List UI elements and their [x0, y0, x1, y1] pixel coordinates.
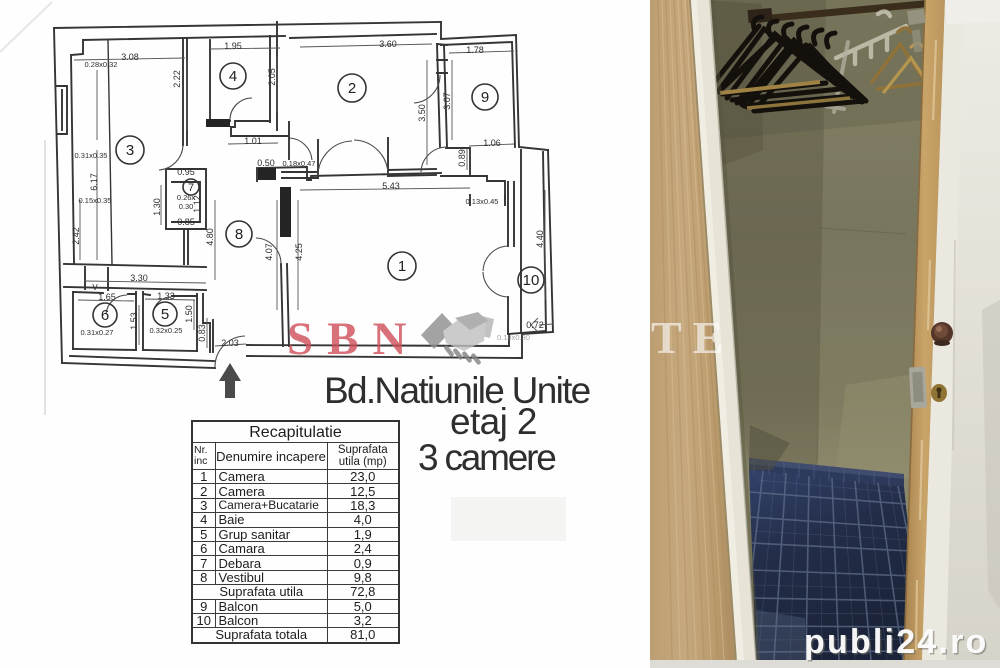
- svg-text:1.65: 1.65: [98, 292, 116, 302]
- svg-text:TE: TE: [651, 312, 734, 363]
- svg-text:2.42: 2.42: [71, 227, 81, 245]
- svg-text:0.18x0.47: 0.18x0.47: [283, 159, 316, 168]
- svg-text:1: 1: [398, 258, 406, 275]
- svg-text:9: 9: [481, 89, 489, 106]
- svg-text:0.95: 0.95: [177, 167, 195, 177]
- svg-text:0.13x0.45: 0.13x0.45: [466, 197, 499, 206]
- svg-text:1.78: 1.78: [466, 45, 484, 55]
- svg-text:1.01: 1.01: [244, 136, 262, 146]
- svg-text:3.60: 3.60: [379, 39, 397, 49]
- svg-text:8: 8: [235, 226, 243, 243]
- svg-text:3.30: 3.30: [130, 273, 148, 283]
- svg-text:0.31x0.35: 0.31x0.35: [75, 151, 108, 160]
- svg-text:0.18x0.30: 0.18x0.30: [497, 333, 530, 342]
- svg-text:3.50: 3.50: [417, 104, 427, 122]
- svg-text:2.05: 2.05: [267, 68, 277, 86]
- svg-text:6: 6: [101, 307, 109, 324]
- svg-text:1.12: 1.12: [192, 195, 202, 213]
- svg-text:0.28x0.32: 0.28x0.32: [85, 60, 118, 69]
- svg-text:0.50: 0.50: [257, 158, 275, 168]
- svg-text:0.83: 0.83: [197, 324, 207, 342]
- svg-text:4.80: 4.80: [205, 228, 215, 246]
- svg-text:1.95: 1.95: [224, 41, 242, 51]
- svg-text:3.07: 3.07: [442, 92, 452, 110]
- svg-text:10: 10: [523, 272, 540, 289]
- svg-text:2.22: 2.22: [172, 70, 182, 88]
- svg-text:1.33: 1.33: [157, 291, 175, 301]
- svg-text:4.25: 4.25: [294, 243, 304, 261]
- svg-text:2.03: 2.03: [221, 338, 239, 348]
- svg-text:5: 5: [161, 306, 169, 323]
- svg-text:0.85: 0.85: [177, 217, 195, 227]
- svg-text:0.89: 0.89: [457, 149, 467, 167]
- svg-text:4: 4: [229, 68, 237, 85]
- svg-text:1.53: 1.53: [129, 312, 139, 330]
- svg-text:0.31x0.27: 0.31x0.27: [81, 328, 114, 337]
- svg-text:4.07: 4.07: [264, 243, 274, 261]
- svg-text:0.32x0.25: 0.32x0.25: [150, 326, 183, 335]
- svg-text:0.15x0.35: 0.15x0.35: [79, 196, 112, 205]
- svg-text:3.08: 3.08: [121, 52, 139, 62]
- svg-text:1.50: 1.50: [184, 305, 194, 323]
- svg-text:V: V: [92, 283, 98, 292]
- svg-text:1.30: 1.30: [152, 198, 162, 216]
- svg-text:0.72: 0.72: [526, 320, 544, 330]
- svg-text:5.43: 5.43: [382, 181, 400, 191]
- svg-text:SBN: SBN: [287, 313, 420, 365]
- svg-text:6.17: 6.17: [89, 173, 99, 191]
- svg-text:publi24.ro: publi24.ro: [804, 623, 988, 661]
- svg-text:1.06: 1.06: [483, 138, 501, 148]
- svg-text:3: 3: [126, 142, 134, 159]
- svg-text:4.40: 4.40: [535, 230, 545, 248]
- svg-text:2: 2: [348, 80, 356, 97]
